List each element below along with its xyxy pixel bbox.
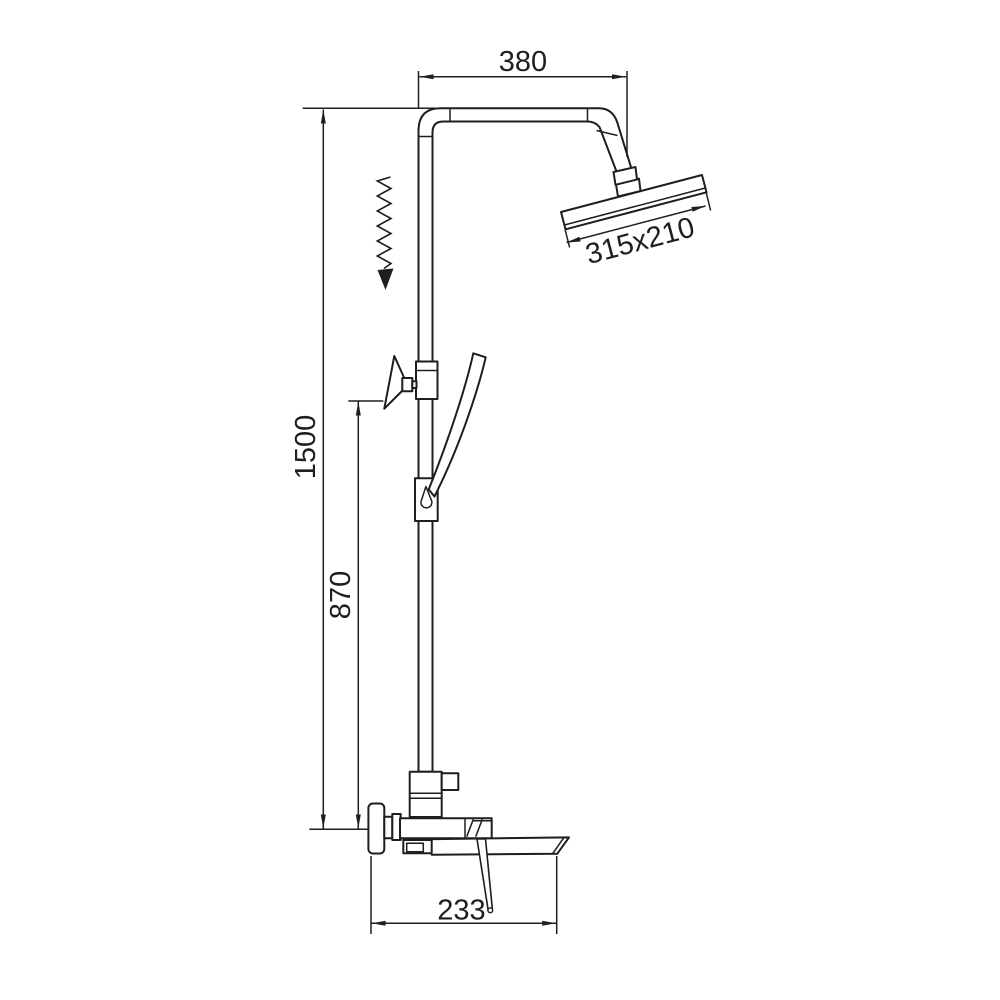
- wall-flange: [368, 804, 384, 854]
- dim-233-arrow-right: [542, 921, 556, 926]
- dim-233: 233: [371, 856, 557, 934]
- cone-neck: [402, 378, 412, 391]
- cone-stem: [412, 381, 416, 388]
- dim-870-arrow-top: [356, 402, 361, 416]
- shower-system-diagram: 380 315x210 1500 870: [0, 0, 1000, 1000]
- ball-joint: [614, 167, 641, 197]
- dim-870-arrow-bottom: [356, 815, 361, 829]
- dim-380: 380: [419, 46, 628, 157]
- elbow-side-knob: [442, 773, 459, 790]
- dim-head-ext-left: [565, 230, 569, 248]
- dim-380-arrow-left: [420, 74, 434, 79]
- dim-870-label: 870: [325, 571, 357, 619]
- lever-tip: [488, 908, 493, 913]
- dim-head-ext-right: [706, 193, 710, 211]
- dim-1500-arrow-top: [321, 110, 326, 124]
- dim-380-arrow-right: [612, 74, 626, 79]
- dim-233-arrow-left: [372, 921, 386, 926]
- dim-1500-arrow-bottom: [321, 815, 326, 829]
- step-inner: [407, 843, 424, 851]
- connector-nut-inner: [384, 817, 392, 839]
- dim-1500-label: 1500: [290, 415, 322, 480]
- dim-head-arrow-right: [691, 206, 705, 212]
- spout-base-step: [403, 840, 431, 853]
- holder-sleeve: [416, 362, 438, 400]
- dim-233-label: 233: [437, 895, 485, 927]
- dim-head-arrow-left: [567, 237, 581, 243]
- dim-870: 870: [325, 401, 383, 829]
- zigzag-spring-icon: [377, 177, 391, 269]
- spout: [427, 837, 569, 854]
- technical-drawing-canvas: 380 315x210 1500 870: [0, 0, 1000, 1000]
- dim-380-label: 380: [499, 46, 547, 78]
- pipe-elbow-block: [410, 772, 442, 817]
- mixer-assembly: [368, 772, 569, 913]
- down-arrowhead-icon: [378, 269, 394, 291]
- pull-down-arrow-symbol: [377, 177, 393, 290]
